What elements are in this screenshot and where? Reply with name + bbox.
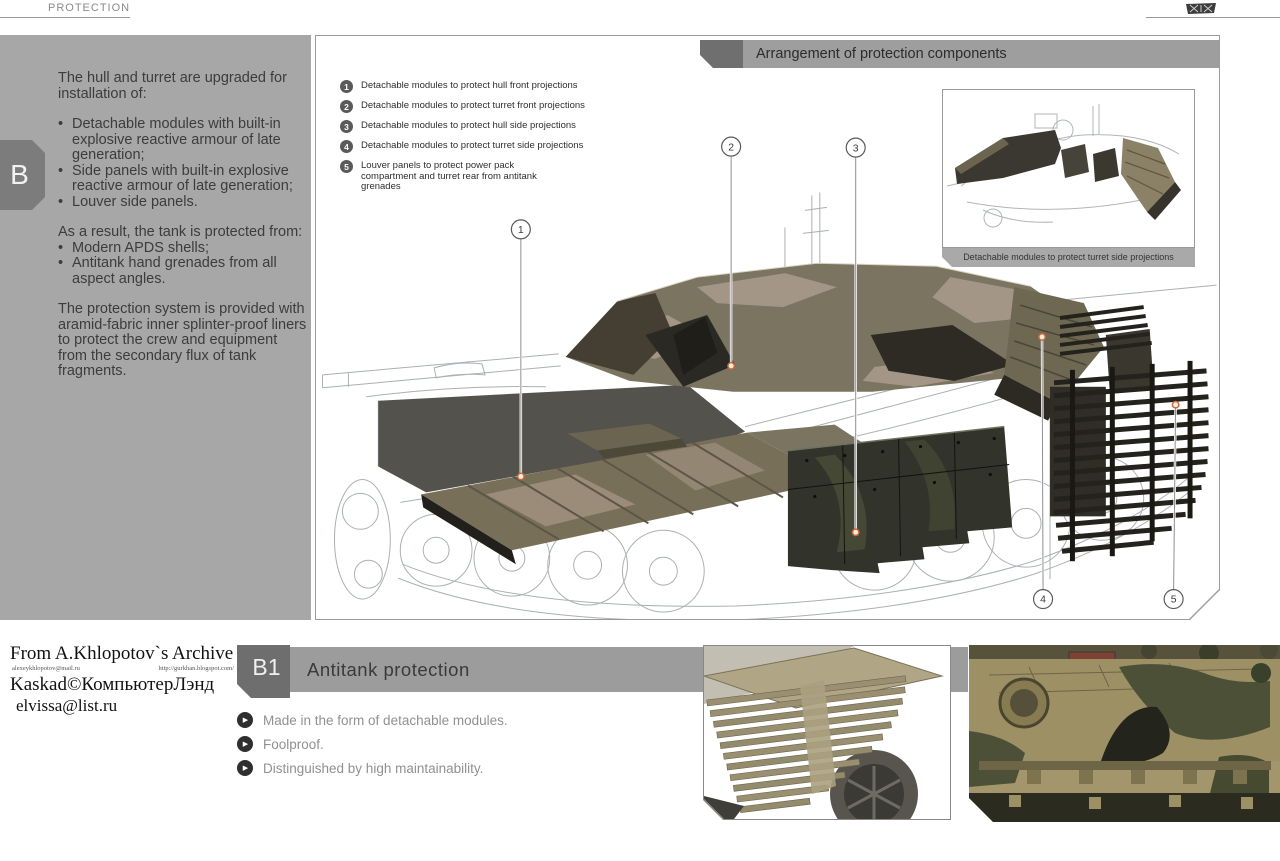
list-item-text: Side panels with built-in explosive reac… [72,164,310,195]
legend-text: Detachable modules to protect hull front… [361,80,578,92]
sidebar-paragraph-3: The protection system is provided with a… [58,302,310,380]
callout-number: 1 [518,225,524,236]
list-item-text: Louver side panels. [72,195,198,211]
brochure-page: PROTECTION B The hull and turret are upg… [0,0,1280,861]
legend-item: 1 Detachable modules to protect hull fro… [340,80,576,93]
section-tab-b1-label: B1 [237,645,290,689]
list-item-text: Detachable modules with built-in explosi… [72,117,310,164]
watermark-email-small: alexeykhlopotov@mail.ru [12,665,80,672]
callout-endpoint-dot [518,473,524,479]
bullet-row: ▶ Made in the form of detachable modules… [237,712,508,728]
bullet-text: Distinguished by high maintainability. [253,761,483,776]
archive-watermark: From A.Khlopotov`s Archive alexeykhlopot… [10,643,236,716]
legend-text: Detachable modules to protect turret fro… [361,100,585,112]
legend-number-badge: 3 [340,120,353,133]
legend-item: 5 Louver panels to protect power pack co… [340,160,576,193]
legend-text: Louver panels to protect power pack comp… [361,160,569,193]
play-bullet-icon: ▶ [237,736,253,752]
callout-endpoint-dot [1039,334,1045,340]
header-rule-right [1146,17,1280,18]
callout-endpoint-dot [853,529,859,535]
legend-number-badge: 5 [340,160,353,173]
sidebar-intro-2: As a result, the tank is protected from: [58,225,310,241]
diagram-panel-inner: Arrangement of protection components [316,36,1219,619]
sidebar-intro-1: The hull and turret are upgraded for ins… [58,71,310,102]
list-item: •Louver side panels. [58,195,310,211]
callout-number: 5 [1171,595,1177,606]
section-tab-b1: B1 [237,645,290,698]
legend-text: Detachable modules to protect hull side … [361,120,576,132]
legend-item: 4 Detachable modules to protect turret s… [340,140,576,153]
legend-item: 2 Detachable modules to protect turret f… [340,100,576,113]
watermark-line-3: elvissa@list.ru [10,696,236,716]
play-bullet-icon: ▶ [237,712,253,728]
sidebar-list-2: •Modern APDS shells; •Antitank hand gren… [58,241,310,288]
section-tab-b: B [0,140,45,210]
turret-inset-image [942,89,1195,248]
page-section-label: PROTECTION [48,2,130,14]
callout-endpoint-dot [728,363,734,369]
legend-number-badge: 4 [340,140,353,153]
legend-text: Detachable modules to protect turret sid… [361,140,583,152]
legend-number-badge: 1 [340,80,353,93]
sidebar-panel: B The hull and turret are upgraded for i… [0,35,311,620]
play-bullet-icon: ▶ [237,760,253,776]
watermark-line-2: Kaskad©КомпьютерЛэнд [10,674,236,696]
turret-inset-caption: Detachable modules to protect turret sid… [942,248,1195,267]
section-b1-bullets: ▶ Made in the form of detachable modules… [237,712,508,784]
list-item-text: Antitank hand grenades from all aspect a… [72,256,310,287]
list-item-text: Modern APDS shells; [72,241,209,257]
callout-number: 3 [853,143,859,154]
callout-number: 4 [1040,595,1046,606]
bullet-dot-icon: • [58,256,72,287]
bullet-row: ▶ Foolproof. [237,736,508,752]
bullet-row: ▶ Distinguished by high maintainability. [237,760,508,776]
bullet-dot-icon: • [58,241,72,257]
turret-inset: Detachable modules to protect turret sid… [942,89,1195,267]
photo-tank-rear [969,645,1280,822]
legend-item: 3 Detachable modules to protect hull sid… [340,120,576,133]
list-item: •Side panels with built-in explosive rea… [58,164,310,195]
bullet-dot-icon: • [58,117,72,164]
publisher-logo-icon [1186,3,1216,14]
sidebar-list-1: •Detachable modules with built-in explos… [58,117,310,210]
diagram-legend: 1 Detachable modules to protect hull fro… [340,80,576,200]
bullet-dot-icon: • [58,195,72,211]
bullet-dot-icon: • [58,164,72,195]
watermark-line-1: From A.Khlopotov`s Archive [10,643,236,665]
louver-render-illustration [704,646,950,819]
sidebar-text: The hull and turret are upgraded for ins… [58,71,310,395]
header-rule-left [0,17,130,18]
armour-modules [378,263,1208,573]
callout-endpoint-dot [1172,402,1178,408]
bullet-text: Made in the form of detachable modules. [253,713,508,728]
photo-louver-render-inner [704,646,950,819]
list-item: •Antitank hand grenades from all aspect … [58,256,310,287]
section-tab-b-label: B [10,159,29,191]
callout-number: 2 [728,142,734,153]
diagram-panel: Arrangement of protection components [315,35,1220,620]
tank-rear-photo-illustration [969,645,1280,822]
watermark-url-small: http://gurkhan.blogspot.com/ [159,665,234,672]
bullet-text: Foolproof. [253,737,324,752]
list-item: •Detachable modules with built-in explos… [58,117,310,164]
photo-louver-render [703,645,951,820]
turret-inset-illustration [943,90,1194,247]
legend-number-badge: 2 [340,100,353,113]
list-item: •Modern APDS shells; [58,241,310,257]
watermark-small-line: alexeykhlopotov@mail.ru http://gurkhan.b… [12,665,234,672]
